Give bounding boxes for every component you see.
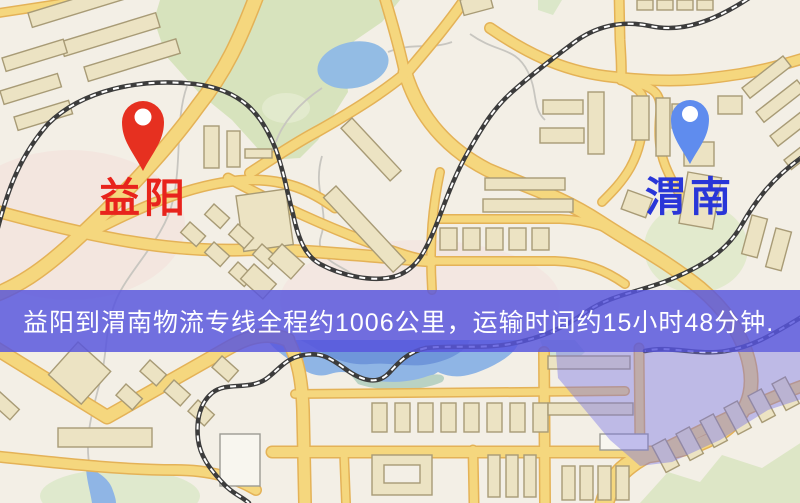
route-info-text: 益阳到渭南物流专线全程约1006公里，运输时间约15小时48分钟. [0, 303, 774, 339]
route-info-banner: 益阳到渭南物流专线全程约1006公里，运输时间约15小时48分钟. [0, 290, 800, 352]
map-canvas[interactable] [0, 0, 800, 503]
origin-city-label: 益阳 [86, 177, 202, 220]
destination-pin-hole [682, 106, 698, 122]
destination-city-label: 渭南 [632, 176, 748, 219]
origin-pin-hole [135, 109, 152, 126]
logistics-route-map: 益阳 渭南 益阳到渭南物流专线全程约1006公里，运输时间约15小时48分钟. [0, 0, 800, 503]
